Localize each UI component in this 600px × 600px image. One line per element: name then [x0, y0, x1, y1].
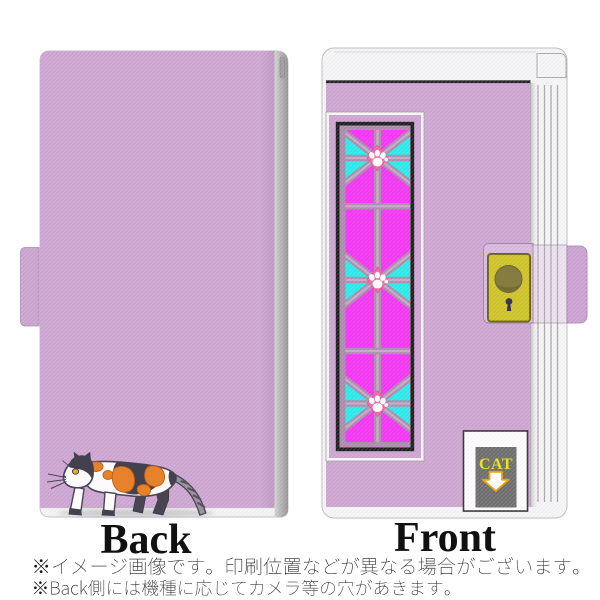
svg-text:Front: Front [394, 515, 496, 561]
svg-text:Back: Back [100, 517, 192, 563]
svg-text:CAT: CAT [479, 456, 513, 473]
